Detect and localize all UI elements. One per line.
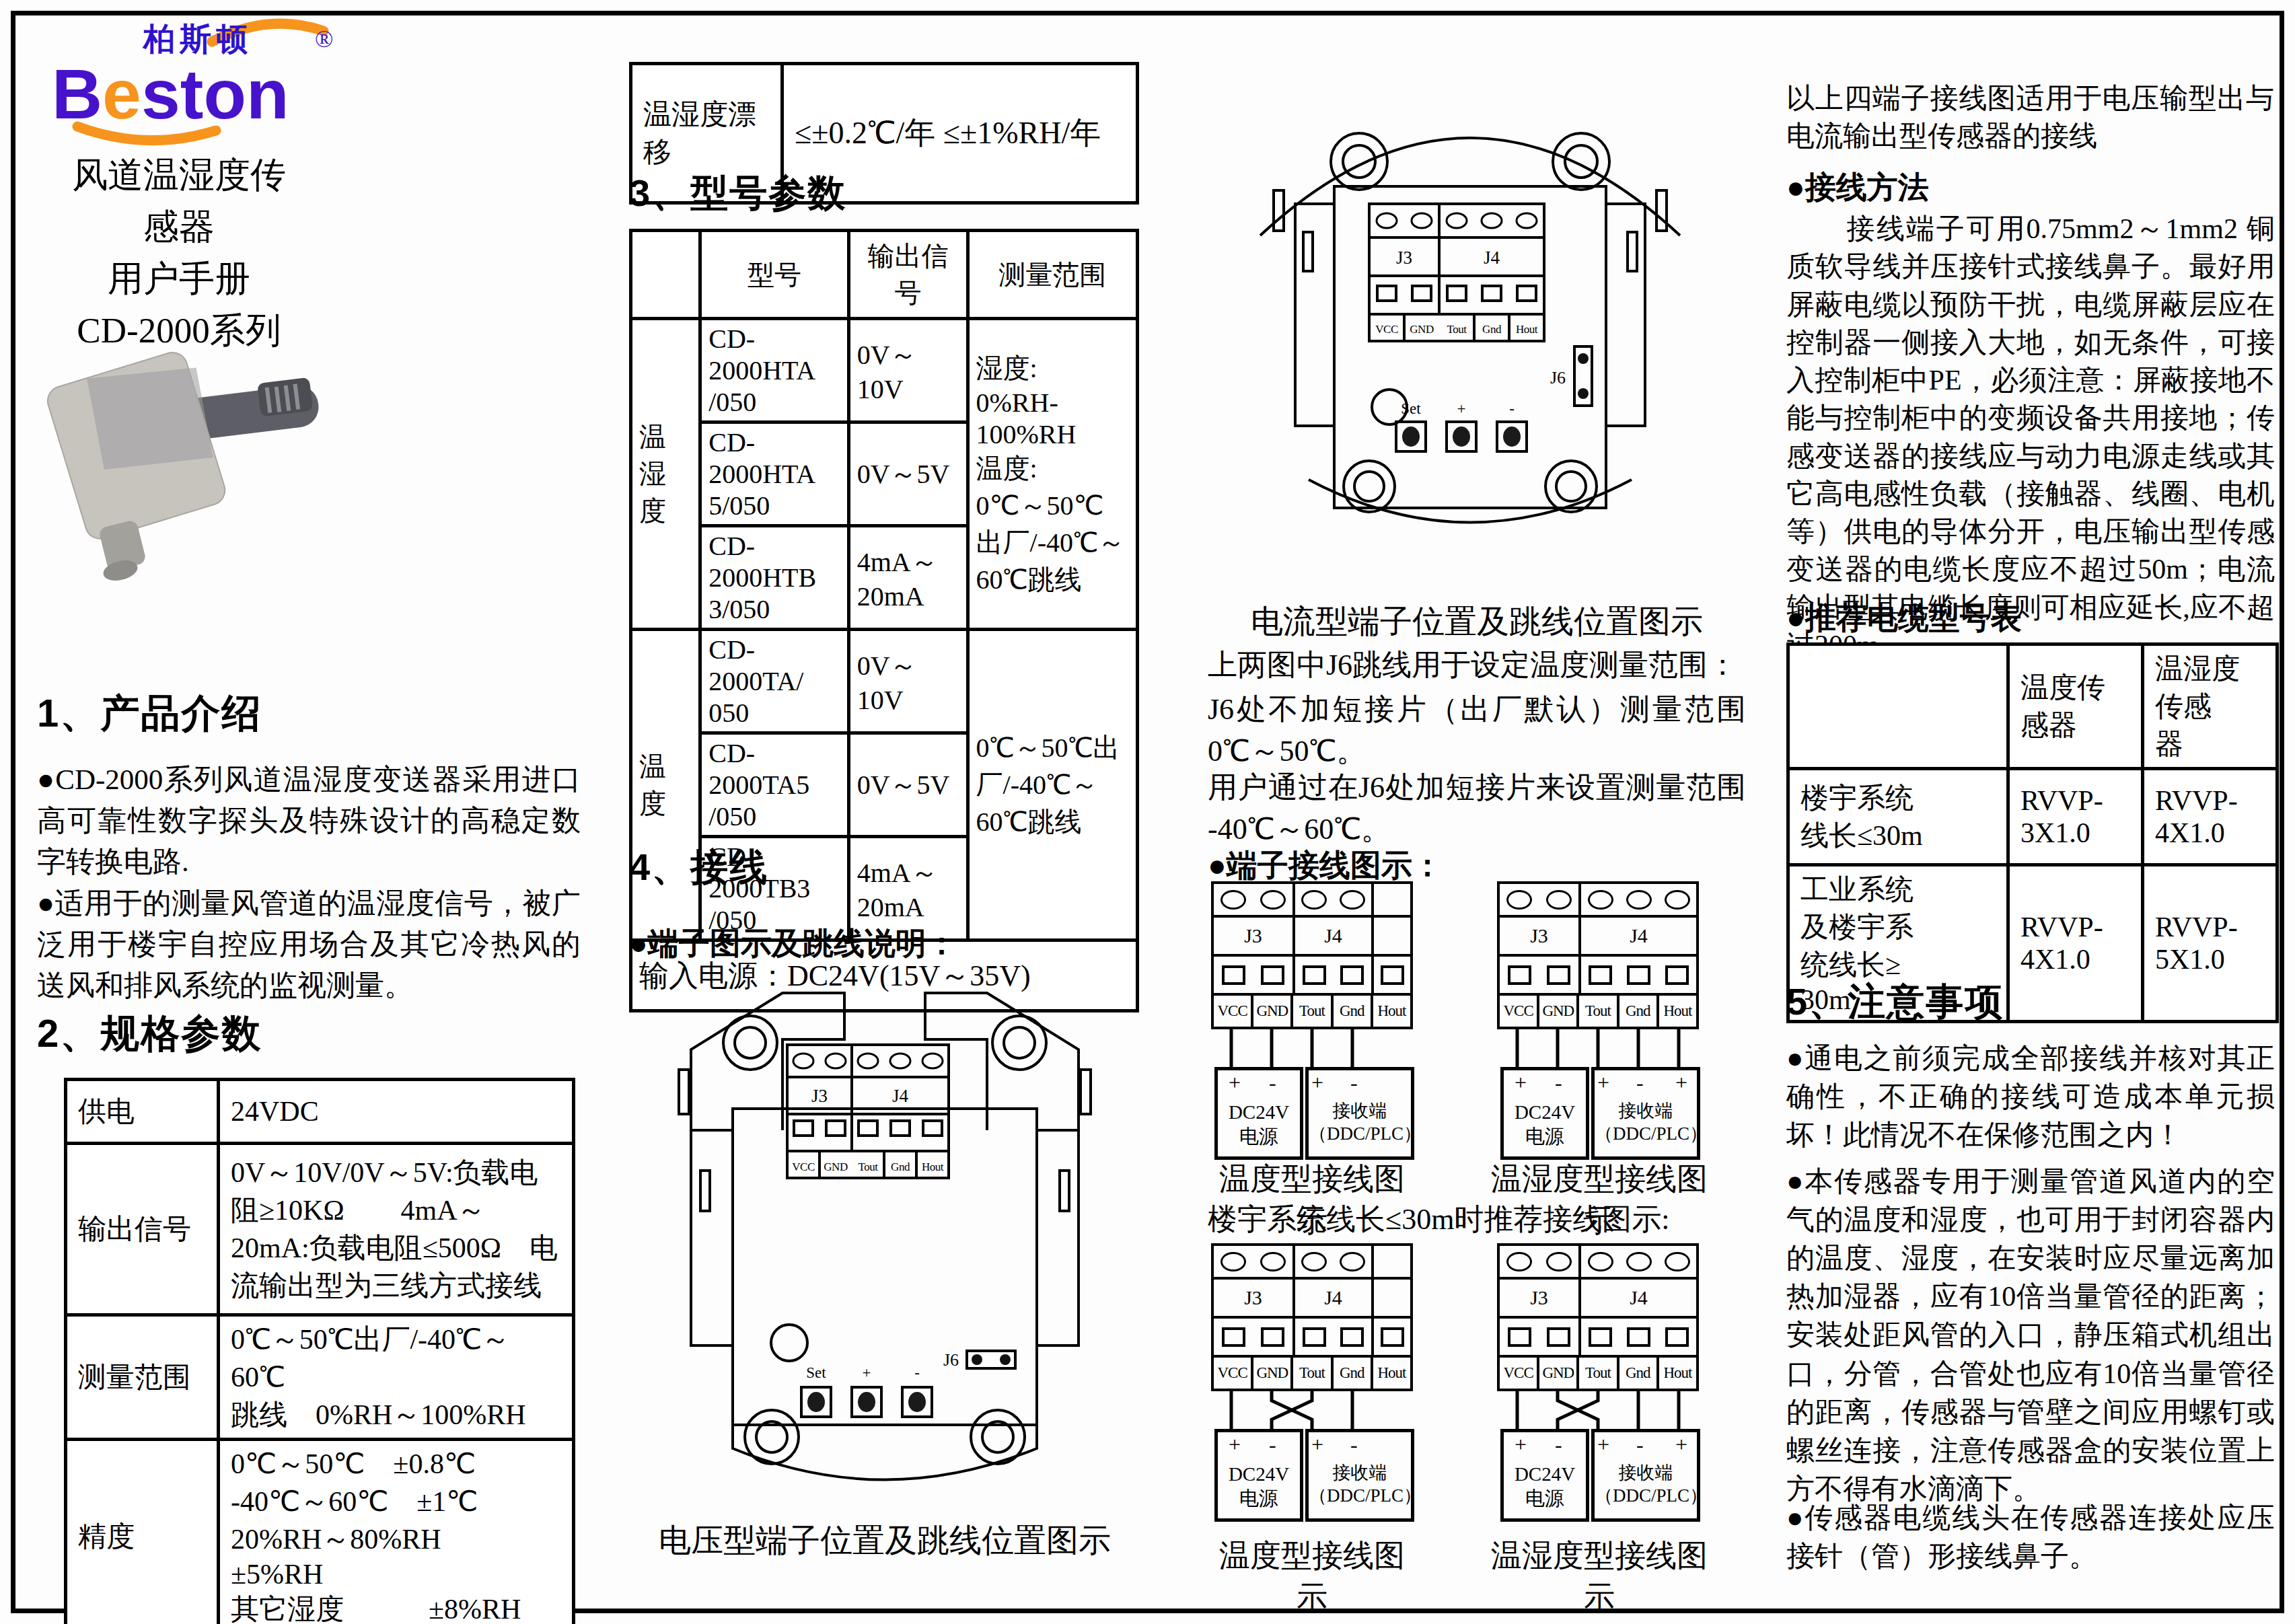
cable-header-temp: 温度传感器 [2008,644,2143,769]
terminal-strip: J3J4 VCCGNDToutGndHout [1211,1243,1413,1391]
minus-terminal: - [1555,1070,1562,1095]
j6-paragraph-3: 用户通过在J6处加短接片来设置测量范围 -40℃～60℃。 [1208,767,1746,851]
pin-label: GND [824,1160,848,1173]
set-button-label: Set [1401,400,1421,417]
j6-jumper: J6 [943,1350,1015,1370]
section3-heading: 3、型号参数 [629,168,846,219]
minus-terminal: - [1555,1432,1562,1457]
cable-cell: RVVP-5X1.0 [2143,865,2278,1022]
pin-label: VCC [1500,1358,1537,1389]
cable-cell: RVVP-3X1.0 [2008,769,2143,865]
receiver-box-label: 接收端 （DDC/PLC） [1595,1462,1697,1508]
pin-label: Tout [859,1160,879,1173]
pin-label: GND [1537,1358,1576,1389]
j3-label: J3 [1500,918,1578,954]
dc-box-label: DC24V 电源 [1218,1100,1300,1149]
j3-label: J3 [811,1086,828,1106]
wires [1497,1029,1699,1067]
j3-label: J3 [1396,248,1412,268]
dc-box-label: DC24V 电源 [1218,1462,1300,1511]
table-row: 精度 0℃～50℃ ±0.8℃ -40℃～60℃ ±1℃ 20%RH～80%RH… [66,1440,574,1624]
j3-label: J3 [1214,1280,1292,1316]
wiring-diagram-temp-humidity-recommended: J3J4 VCCGNDToutGndHout +-DC24V 电源 +-+接收端… [1497,1243,1699,1524]
spec-value: 0℃～50℃出厂/-40℃～60℃ 跳线 0%RH～100%RH [219,1315,574,1440]
model-cell: CD-2000TA/ 050 [700,630,848,733]
title-line-1: 风道温湿度传感器 [56,149,302,253]
pin-label: Gnd [1331,996,1371,1027]
j4-label: J4 [1292,1280,1371,1316]
pin-label: Hout [1371,996,1410,1027]
pin-label: Tout [1447,323,1467,336]
j6-jumper: J6 [1550,346,1592,406]
pin-label: Hout [1656,1358,1696,1389]
model-header-blank [631,231,700,319]
pin-label: VCC [792,1160,815,1173]
pin-label: VCC [1214,1358,1251,1389]
pin-label: VCC [1500,996,1537,1027]
minus-terminal: - [1350,1432,1358,1457]
terminal-block: J3 J4 VCC GND Tout Gnd Hout [1369,204,1544,341]
j6-paragraph-1: 上两图中J6跳线用于设定温度测量范围： [1208,644,1746,686]
pin-label: Tout [1576,1358,1616,1389]
j3-label: J3 [1214,918,1292,954]
set-button-label: Set [806,1364,826,1381]
pin-label: Gnd [891,1160,910,1173]
section1-paragraph-1: ●CD-2000系列风道温湿度变送器采用进口高可靠性数字探头及特殊设计的高稳定数… [37,759,581,882]
plus-button-label: + [863,1364,871,1381]
wiring-caption-temp-humidity-2: 温湿度型接线图示 [1485,1535,1714,1619]
pin-label: Hout [1656,996,1696,1027]
model-cell: 0V～10V [848,630,968,733]
pin-label: Tout [1290,1358,1330,1389]
table-row: 测量范围 0℃～50℃出厂/-40℃～60℃ 跳线 0%RH～100%RH [66,1315,574,1440]
table-row: 温度 CD-2000TA/ 050 0V～10V 0℃～50℃出 厂/-40℃～… [631,630,1138,733]
receiver-box-label: 接收端 （DDC/PLC） [1309,1100,1411,1146]
pin-label: VCC [1375,323,1398,336]
model-range-cell: 0℃～50℃出 厂/-40℃～ 60℃跳线 [968,630,1137,940]
pin-label: Tout [1576,996,1616,1027]
column-left: 柏斯顿 Beston ® 风道温湿度传感器 用户手册 CD-2000系列 1、产… [37,0,585,1624]
wiring-method-subheading: ●接线方法 [1786,167,1929,209]
j4-label: J4 [1578,918,1696,954]
receiver-box: +-+接收端 （DDC/PLC） [1305,1429,1414,1522]
current-diagram-caption: 电流型端子位置及跳线位置图示 [1208,600,1746,643]
j4-label: J4 [1484,248,1500,268]
section2-heading: 2、规格参数 [37,1008,262,1060]
dc24v-power-box: +-DC24V 电源 [1500,1067,1589,1160]
pin-label: GND [1251,1358,1290,1389]
terminal-screws [793,1054,943,1068]
title-line-2: 用户手册 [56,253,302,305]
j4-label: J4 [892,1086,909,1106]
spec-value: 24VDC [219,1080,574,1144]
plus-terminal: + [1597,1070,1609,1095]
cable-header-temp-humidity: 温湿度传感 器 [2143,644,2278,769]
receiver-box-label: 接收端 （DDC/PLC） [1595,1100,1697,1146]
spec-table: 供电 24VDC 输出信号 0V～10V/0V～5V:负载电阻≥10KΩ 4mA… [64,1078,575,1624]
model-cell: CD-2000TA5 /050 [700,733,848,837]
beston-logo: 柏斯顿 Beston ® [42,12,342,150]
model-header-range: 测量范围 [968,231,1137,319]
section1-paragraph-2: ●适用于的测量风管道的温湿度信号，被广泛用于楼宇自控应用场合及其它冷热风的送风和… [37,883,581,1006]
pin-label: Hout [1371,1358,1410,1389]
pin-label: Hout [922,1160,944,1173]
product-photo [37,303,326,612]
set-buttons: Set + - [801,1364,932,1417]
plus-terminal: + [1311,1432,1323,1457]
minus-terminal: - [1269,1432,1276,1457]
table-header-row: 型号 输出信 号 测量范围 [631,231,1138,319]
model-cell: 0V～5V [848,422,968,526]
pin-label: Gnd [1482,323,1502,336]
cable-row-label: 楼宇系统 线长≤30m [1788,769,2008,865]
plus-terminal: + [1515,1432,1527,1457]
wiring-diagram-temp-humidity: J3J4 VCCGNDToutGndHout +-DC24V 电源 +-+接收端… [1497,881,1699,1162]
cable-cell: RVVP-4X1.0 [2008,865,2143,1022]
table-row: 楼宇系统 线长≤30m RVVP-3X1.0 RVVP-4X1.0 [1788,769,2278,865]
table-header-row: 温度传感器 温湿度传感 器 [1788,644,2278,769]
pin-label: Gnd [1331,1358,1371,1389]
j3-label: J3 [1500,1280,1578,1316]
minus-terminal: - [1636,1070,1644,1095]
wiring-diagram-temp-recommended: J3J4 VCCGNDToutGndHout +-DC24V 电源 +-+接收端… [1211,1243,1413,1524]
plus-button-label: + [1457,400,1466,417]
note-3: ●传感器电缆线头在传感器连接处应压接针（管）形接线鼻子。 [1786,1499,2275,1576]
pin-label: Tout [1290,996,1330,1027]
pin-label: GND [1251,996,1290,1027]
minus-terminal: - [1636,1432,1644,1457]
spec-key: 供电 [66,1080,219,1144]
terminal-strip: J3J4 VCCGNDToutGndHout [1497,881,1699,1029]
terminal-screws [1377,213,1537,228]
dc24v-power-box: +-DC24V 电源 [1214,1429,1303,1522]
terminal-strip: J3J4 VCCGNDToutGndHout [1497,1243,1699,1391]
minus-terminal: - [1269,1070,1276,1095]
model-table: 型号 输出信 号 测量范围 温湿度 CD-2000HTA /050 0V～10V… [629,229,1139,1012]
table-row: 供电 24VDC [66,1080,574,1144]
cable-table-subheading: ●推荐电缆型号表 [1786,597,2022,639]
logo-chinese-text: 柏斯顿 [142,21,252,57]
cable-gland [98,519,147,584]
wiring-caption-temp-2: 温度型接线图示 [1211,1535,1413,1619]
model-cell: 0V～10V [848,319,968,422]
table-row: 温湿度 CD-2000HTA /050 0V～10V 湿度: 0%RH-100%… [631,319,1138,422]
j4-label: J4 [1292,918,1371,954]
model-group-name: 温湿度 [631,319,700,630]
terminal-block: J3 J4 VCC GND Tout Gnd Hout [787,1045,949,1178]
plus-terminal: + [1515,1070,1527,1095]
plus-terminal: + [1311,1070,1323,1095]
wires-crossed [1211,1391,1413,1429]
voltage-device-diagram: J3 J4 VCC GND Tout Gnd Hout J6 Set + - [676,974,1093,1512]
section4-heading: 4、接线 [629,842,768,893]
section4-subheading: ●端子图示及跳线说明： [629,923,957,965]
current-device-diagram: J3 J4 VCC GND Tout Gnd Hout J6 Set + - [1235,30,1706,595]
note-1: ●通电之前须完成全部接线并核对其正确性，不正确的接线可造成本单元损坏！此情况不在… [1786,1039,2275,1154]
column-right: 以上四端子接线图适用于电压输型出与电流输出型传感器的接线 ●接线方法 接线端子可… [1786,0,2276,1624]
plus-terminal: + [1229,1070,1241,1095]
model-cell: CD-2000HTA /050 [700,319,848,422]
column-middle-left: 温湿度漂移 ≤±0.2℃/年 ≤±1%RH/年 3、型号参数 型号 输出信 号 … [629,0,1147,1624]
dc-box-label: DC24V 电源 [1504,1462,1586,1511]
j4-label: J4 [1578,1280,1696,1316]
note-2: ●本传感器专用于测量管道风道内的空气的温度和湿度，也可用于封闭容器内的温度、湿度… [1786,1162,2275,1508]
plus-terminal: + [1675,1432,1687,1457]
pin-label: Hout [1516,323,1538,336]
cable-table: 温度传感器 温湿度传感 器 楼宇系统 线长≤30m RVVP-3X1.0 RVV… [1786,642,2279,1023]
model-cell: CD-2000HTB 3/050 [700,526,848,630]
housing-outline [679,993,1091,1480]
terminal-strip: J3J4 VCCGNDToutGndHout [1211,881,1413,1029]
model-cell: CD-2000HTA 5/050 [700,422,848,526]
four-terminal-note: 以上四端子接线图适用于电压输型出与电流输出型传感器的接线 [1786,79,2274,155]
j6-label: J6 [943,1350,959,1370]
column-middle-right: J3 J4 VCC GND Tout Gnd Hout J6 Set + - 电… [1208,0,1753,1624]
pin-label: GND [1410,323,1434,336]
receiver-box: +-+接收端 （DDC/PLC） [1305,1067,1414,1160]
j6-label: J6 [1550,368,1566,387]
pin-label: Gnd [1617,996,1656,1027]
spec-key: 测量范围 [66,1315,219,1440]
model-header-output: 输出信 号 [848,231,968,319]
voltage-diagram-caption: 电压型端子位置及跳线位置图示 [629,1519,1140,1562]
housing-outline [1260,133,1680,523]
terminal-wiring-subheading: ●端子接线图示： [1208,845,1443,887]
pin-label: VCC [1214,996,1251,1027]
spec-key: 精度 [66,1440,219,1624]
wires [1211,1029,1413,1067]
plus-terminal: + [1597,1432,1609,1457]
model-cell: 0V～5V [848,733,968,837]
pin-label: GND [1537,996,1576,1027]
terminal-slots [794,1121,942,1136]
plus-terminal: + [1229,1432,1241,1457]
dc-box-label: DC24V 电源 [1504,1100,1586,1149]
plus-terminal: + [1675,1070,1687,1095]
receiver-box: +-+接收端 （DDC/PLC） [1591,1429,1700,1522]
pin-label: Gnd [1617,1358,1656,1389]
model-header-model: 型号 [700,231,848,319]
section5-heading: 5、注意事项 [1786,977,2004,1028]
j6-paragraph-2: J6处不加短接片（出厂默认）测量范围 0℃～50℃。 [1208,689,1746,773]
set-buttons: Set + - [1396,400,1527,451]
spec-value: 0℃～50℃ ±0.8℃ -40℃～60℃ ±1℃ 20%RH～80%RH ±5… [219,1440,574,1624]
section1-heading: 1、产品介绍 [37,688,262,740]
cable-cell: RVVP-4X1.0 [2143,769,2278,865]
terminal-slots [1377,286,1536,301]
wiring-diagram-temp: J3J4 VCCGNDToutGndHout +-DC24V 电源 +-+接收端… [1211,881,1413,1162]
recommended-wiring-note: 楼宇系统线长≤30m时推荐接线图示: [1208,1199,1749,1241]
wires-crossed [1497,1391,1699,1429]
dc24v-power-box: +-DC24V 电源 [1214,1067,1303,1160]
logo-wordmark: Beston [52,55,289,133]
receiver-box-label: 接收端 （DDC/PLC） [1309,1462,1411,1508]
table-row: 输出信号 0V～10V/0V～5V:负载电阻≥10KΩ 4mA～20mA:负载电… [66,1144,574,1315]
minus-button-label: - [914,1364,920,1381]
spec-value: 0V～10V/0V～5V:负载电阻≥10KΩ 4mA～20mA:负载电阻≤500… [219,1144,574,1315]
sensor-head [44,347,228,542]
model-group-name: 温度 [631,630,700,940]
model-cell: 4mA～20mA [848,526,968,630]
cable-header-blank [1788,644,2008,769]
spec-key: 输出信号 [66,1144,219,1315]
receiver-box: +-+接收端 （DDC/PLC） [1591,1067,1700,1160]
minus-button-label: - [1509,400,1515,417]
model-range-cell: 湿度: 0%RH-100%RH 温度: 0℃～50℃ 出厂/-40℃～ 60℃跳… [968,319,1137,630]
registered-mark: ® [315,26,333,52]
minus-terminal: - [1350,1070,1358,1095]
dc24v-power-box: +-DC24V 电源 [1500,1429,1589,1522]
wiring-method-paragraph: 接线端子可用0.75mm2～1mm2 铜质软导线并压接针式接线鼻子。最好用屏蔽电… [1786,210,2275,664]
